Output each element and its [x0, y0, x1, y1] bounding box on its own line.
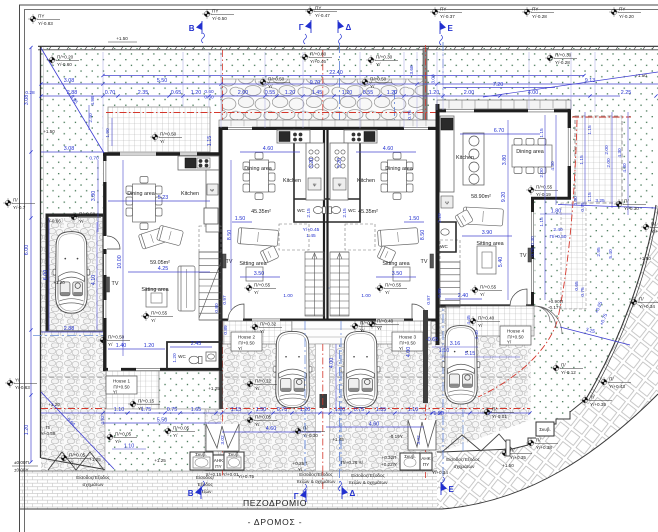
svg-text:1.50: 1.50 [235, 216, 246, 222]
svg-text:1.20: 1.20 [342, 90, 353, 96]
svg-text:1.20: 1.20 [387, 90, 398, 96]
svg-text:+1.50: +1.50 [639, 256, 651, 261]
svg-text:1.15: 1.15 [231, 407, 242, 413]
svg-text:Dining area: Dining area [244, 166, 272, 172]
svg-text:+1.50: +1.50 [43, 129, 55, 134]
svg-text:Υ/: Υ/ [478, 323, 483, 328]
svg-text:Π/+0.05: Π/+0.05 [69, 453, 86, 458]
svg-text:Υ/-0.19: Υ/-0.19 [536, 192, 551, 197]
svg-text:ΠΥ: ΠΥ [212, 9, 218, 14]
svg-text:Π/+0.26 Υ/: Π/+0.26 Υ/ [341, 460, 363, 465]
svg-text:±0.00Π: ±0.00Π [14, 460, 29, 465]
svg-text:0.80: 0.80 [214, 303, 220, 313]
svg-text:3.02: 3.02 [220, 435, 226, 445]
svg-text:Π/+0.50: Π/+0.50 [370, 77, 387, 82]
svg-text:45.35m²: 45.35m² [251, 209, 271, 215]
svg-text:Π/+0.50: Π/+0.50 [399, 341, 416, 346]
svg-text:9.70: 9.70 [310, 80, 321, 86]
svg-text:3.20: 3.20 [309, 158, 315, 169]
svg-text:0.70: 0.70 [105, 90, 116, 96]
svg-text:58.90m²: 58.90m² [471, 194, 491, 200]
svg-text:3.25: 3.25 [595, 198, 605, 204]
svg-text:Υ/-0.7: Υ/-0.7 [13, 205, 26, 210]
svg-text:5.15: 5.15 [465, 351, 476, 357]
svg-text:WC: WC [297, 208, 305, 213]
svg-text:0.89: 0.89 [223, 325, 229, 335]
svg-text:WC: WC [348, 208, 356, 213]
svg-text:Ε: Ε [448, 24, 454, 33]
svg-text:2.00: 2.00 [238, 90, 249, 96]
svg-text:0.55: 0.55 [265, 90, 276, 96]
svg-text:Π/: Π/ [46, 425, 51, 430]
svg-text:Υ/-0.60: Υ/-0.60 [57, 62, 72, 67]
svg-text:Sitting area: Sitting area [239, 261, 266, 267]
svg-text:3.80: 3.80 [91, 191, 97, 202]
svg-text:Υ/+0.35: Υ/+0.35 [510, 455, 526, 460]
svg-text:Π/+0.50: Π/+0.50 [108, 335, 125, 340]
svg-text:4.00: 4.00 [528, 90, 539, 96]
svg-text:2.35: 2.35 [138, 90, 149, 96]
svg-text:WC: WC [440, 244, 448, 249]
svg-text:1.10: 1.10 [124, 444, 135, 450]
svg-text:Π/+0.50: Π/+0.50 [238, 341, 255, 346]
svg-text:2.20: 2.20 [437, 213, 443, 223]
svg-text:1.00: 1.00 [283, 293, 293, 299]
svg-text:Υ/: Υ/ [115, 439, 120, 444]
svg-text:Π/: Π/ [639, 297, 644, 302]
svg-text:4.60: 4.60 [266, 426, 277, 432]
svg-text:2.88: 2.88 [64, 326, 75, 332]
svg-text:+1.50: +1.50 [502, 463, 514, 468]
svg-text:House 1: House 1 [113, 379, 131, 384]
svg-text:Δ: Δ [350, 489, 356, 498]
svg-text:2.40: 2.40 [458, 293, 469, 299]
svg-text:2.15: 2.15 [342, 208, 348, 218]
svg-text:1.20: 1.20 [335, 407, 346, 413]
svg-text:4.60: 4.60 [263, 146, 274, 152]
svg-text:Π/: Π/ [303, 426, 308, 431]
svg-text:Υ/: Υ/ [160, 139, 165, 144]
svg-text:Π/: Π/ [624, 199, 629, 204]
svg-text:+1.50: +1.50 [430, 411, 444, 417]
svg-text:Υ/: Υ/ [255, 422, 260, 427]
svg-text:πεζών & οχημάτων: πεζών & οχημάτων [297, 478, 336, 485]
svg-text:TV: TV [112, 281, 119, 287]
svg-text:1.15: 1.15 [579, 155, 585, 165]
svg-text:8.50: 8.50 [227, 230, 233, 241]
svg-text:Σκυβ.: Σκυβ. [404, 454, 416, 459]
svg-text:Υ/-0.30: Υ/-0.30 [624, 206, 639, 211]
svg-text:Dining area: Dining area [127, 191, 155, 197]
svg-text:Σκυβ.: Σκυβ. [539, 427, 551, 432]
svg-text:0.65: 0.65 [574, 281, 580, 291]
svg-text:Γ: Γ [299, 23, 304, 32]
svg-text:8.55: 8.55 [363, 90, 374, 96]
svg-text:4.30: 4.30 [617, 148, 623, 158]
svg-text:Υ/+0.35: Υ/+0.35 [590, 402, 606, 407]
svg-text:+1.25: +1.25 [154, 458, 166, 463]
svg-text:Υ/+0.45: Υ/+0.45 [303, 227, 320, 233]
svg-text:Π/+0.30: Π/+0.30 [555, 53, 572, 58]
svg-text:4.10: 4.10 [91, 275, 97, 286]
svg-text:Υ/+0.Τ5: Υ/+0.Τ5 [238, 474, 255, 479]
svg-text:Υ/: Υ/ [238, 346, 243, 351]
svg-text:5.40: 5.40 [608, 249, 614, 259]
svg-text:πεζών & οχημάτων: πεζών & οχημάτων [349, 479, 388, 486]
svg-text:3.02: 3.02 [416, 435, 422, 445]
svg-text:10.00: 10.00 [117, 255, 123, 269]
svg-text:0.97: 0.97 [222, 295, 228, 305]
svg-text:Β: Β [189, 24, 195, 33]
svg-text:0.75: 0.75 [167, 407, 178, 413]
svg-text:Π/+0.55: Π/+0.55 [480, 285, 497, 290]
svg-text:0.70: 0.70 [89, 156, 99, 162]
svg-text:- ΔΡΟΜΟΣ -: - ΔΡΟΜΟΣ - [248, 517, 303, 527]
svg-text:Υ/+0.34: Υ/+0.34 [432, 470, 448, 475]
svg-text:1.00: 1.00 [361, 293, 371, 299]
svg-text:3.08: 3.08 [64, 146, 75, 152]
svg-text:6.00: 6.00 [24, 245, 30, 256]
svg-text:1.80: 1.80 [551, 209, 562, 215]
svg-text:Ε: Ε [449, 485, 455, 494]
svg-text:Π/+0.30: Π/+0.30 [376, 55, 393, 60]
svg-text:Π/+0.05: Π/+0.05 [173, 426, 190, 431]
svg-text:Υ/: Υ/ [15, 378, 20, 383]
svg-text:Υ/-0.12: Υ/-0.12 [561, 370, 576, 375]
svg-text:Π/: Π/ [561, 363, 566, 368]
svg-text:Sitting area: Sitting area [141, 287, 168, 293]
svg-text:TV: TV [421, 259, 428, 265]
svg-text:1.45: 1.45 [306, 233, 316, 239]
svg-text:1.20: 1.20 [191, 90, 202, 96]
svg-text:Υ/: Υ/ [79, 219, 84, 224]
svg-text:Π/+0.50: Π/+0.50 [160, 132, 177, 137]
svg-text:Υ/-0.66: Υ/-0.66 [46, 219, 61, 224]
svg-text:ΠΥ: ΠΥ [532, 7, 538, 12]
svg-text:Υ/: Υ/ [69, 460, 74, 465]
svg-text:1.15: 1.15 [587, 192, 593, 202]
svg-text:+0.22\Υ: +0.22\Υ [381, 462, 397, 467]
svg-text:Π/: Π/ [492, 407, 497, 412]
svg-text:2.40: 2.40 [553, 227, 563, 233]
svg-text:Υ/: Υ/ [173, 433, 178, 438]
svg-text:0.75: 0.75 [354, 407, 365, 413]
svg-text:Γ: Γ [294, 492, 299, 501]
svg-text:3.20: 3.20 [337, 158, 343, 169]
svg-text:1.15: 1.15 [207, 136, 213, 147]
svg-text:0.75: 0.75 [277, 407, 288, 413]
svg-text:Π/: Π/ [651, 222, 656, 227]
svg-text:Π/: Π/ [536, 438, 541, 443]
svg-text:ΑΗΚ: ΑΗΚ [421, 456, 431, 461]
svg-text:1.50: 1.50 [409, 216, 420, 222]
svg-text:2.45: 2.45 [191, 341, 202, 347]
svg-text:Kitchen: Kitchen [456, 155, 474, 161]
svg-text:Υ/: Υ/ [108, 342, 113, 347]
svg-text:Π/+0.05: Π/+0.05 [360, 321, 377, 326]
svg-text:+0.32Π: +0.32Π [382, 455, 397, 460]
svg-text:Υ/+0.46: Υ/+0.46 [310, 59, 326, 64]
svg-text:3.08: 3.08 [431, 74, 437, 84]
svg-text:0.75: 0.75 [580, 202, 586, 212]
svg-text:2.25: 2.25 [621, 90, 632, 96]
svg-text:Υ/: Υ/ [590, 395, 595, 400]
svg-text:3.08: 3.08 [64, 78, 75, 84]
svg-text:1.20: 1.20 [24, 425, 30, 436]
svg-text:House 3: House 3 [399, 335, 417, 340]
svg-text:1.15: 1.15 [539, 128, 545, 138]
svg-text:Υ/-0.50: Υ/-0.50 [212, 16, 227, 21]
svg-text:Π/+0.12: Π/+0.12 [255, 379, 272, 384]
svg-text:1.15: 1.15 [587, 125, 593, 135]
svg-text:Π/+0.55: Π/+0.55 [151, 311, 168, 316]
svg-text:Π/: Π/ [609, 377, 614, 382]
svg-text:Π/+0.40: Π/+0.40 [478, 316, 495, 321]
svg-text:1.65: 1.65 [191, 407, 202, 413]
svg-text:Π/+0.40: Π/+0.40 [377, 319, 394, 324]
svg-text:TV: TV [520, 253, 527, 259]
svg-text:Υ/: Υ/ [113, 390, 118, 395]
svg-text:ΑΗΚ: ΑΗΚ [214, 458, 224, 463]
svg-text:Π/+0.50: Π/+0.50 [79, 212, 96, 217]
svg-text:Είσοδος/: Είσοδος/ [196, 475, 215, 480]
svg-text:Υ/: Υ/ [399, 346, 404, 351]
svg-text:0.75: 0.75 [530, 247, 536, 257]
svg-text:Π/+0.55: Π/+0.55 [254, 283, 271, 288]
svg-text:2.00: 2.00 [464, 90, 475, 96]
svg-text:TV: TV [226, 259, 233, 265]
svg-text:4.00: 4.00 [329, 358, 335, 369]
svg-text:Π/+0.15: Π/+0.15 [138, 399, 155, 404]
svg-text:+1.50: +1.50 [116, 36, 128, 41]
svg-text:Kitchen: Kitchen [181, 191, 199, 197]
svg-text:+0.90Π: +0.90Π [548, 299, 563, 304]
svg-text:Υ/-0.28: Υ/-0.28 [555, 60, 570, 65]
svg-text:Υ/-0.47: Υ/-0.47 [315, 13, 330, 18]
svg-text:Kitchen: Kitchen [283, 178, 301, 184]
svg-text:Υ/: Υ/ [260, 329, 265, 334]
svg-text:4.30: 4.30 [622, 163, 628, 173]
svg-text:Υ/: Υ/ [268, 84, 273, 89]
svg-text:4.25: 4.25 [158, 266, 169, 272]
svg-text:Dining area: Dining area [516, 149, 544, 155]
svg-text:4.30: 4.30 [550, 161, 556, 171]
svg-text:0.30: 0.30 [573, 196, 579, 206]
svg-text:Υ/-0.37: Υ/-0.37 [440, 14, 455, 19]
svg-text:6.00: 6.00 [43, 270, 49, 281]
svg-text:1.50: 1.50 [256, 407, 267, 413]
svg-text:Ψ: Ψ [338, 183, 342, 188]
svg-text:Υ/: Υ/ [507, 340, 512, 345]
svg-text:σχημάτων: σχημάτων [83, 481, 104, 487]
svg-text:0.75: 0.75 [580, 287, 586, 297]
svg-text:Υ/: Υ/ [254, 290, 259, 295]
svg-text:2.95: 2.95 [596, 247, 602, 257]
svg-text:Σκυβ.: Σκυβ. [195, 452, 207, 457]
svg-text:1.20: 1.20 [429, 90, 440, 96]
svg-text:1.10: 1.10 [439, 348, 450, 354]
svg-text:ΠΥ: ΠΥ [423, 462, 429, 467]
svg-text:22.40: 22.40 [329, 70, 343, 76]
svg-text:Π/: Π/ [510, 448, 515, 453]
svg-text:1.20: 1.20 [144, 343, 155, 349]
svg-text:Δ: Δ [346, 23, 352, 32]
svg-text:ΠΥ: ΠΥ [440, 7, 446, 12]
svg-text:3.90: 3.90 [482, 230, 493, 236]
svg-text:Σκυβ.: Σκυβ. [228, 452, 240, 457]
svg-text:Υ/+0.38: Υ/+0.38 [536, 445, 552, 450]
svg-text:House 2: House 2 [238, 335, 256, 340]
svg-text:+1.25: +1.25 [208, 386, 220, 391]
svg-text:Ψ: Ψ [445, 201, 449, 206]
svg-text:3.50: 3.50 [392, 271, 403, 277]
svg-text:Π/+0.50: Π/+0.50 [268, 77, 285, 82]
svg-text:Dining area: Dining area [385, 166, 413, 172]
svg-text:0.97: 0.97 [426, 295, 432, 305]
svg-text:Π/+0.05: Π/+0.05 [255, 415, 272, 420]
svg-text:1.90: 1.90 [105, 128, 111, 138]
svg-text:Υ/-0.58: Υ/-0.58 [41, 431, 56, 436]
svg-text:0.75: 0.75 [407, 110, 413, 120]
svg-text:Π/+0.05: Π/+0.05 [115, 432, 132, 437]
svg-text:Π/+0.55: Π/+0.55 [385, 283, 402, 288]
svg-text:3.50: 3.50 [254, 271, 265, 277]
svg-text:±0.00Υ: ±0.00Υ [14, 468, 29, 473]
svg-text:4.60: 4.60 [369, 422, 380, 428]
svg-text:-0.19Υ: -0.19Υ [389, 434, 403, 439]
svg-text:2.00: 2.00 [606, 158, 612, 168]
svg-text:Β: Β [188, 489, 194, 498]
svg-text:Π/+0.30: Π/+0.30 [310, 52, 327, 57]
svg-text:4.60: 4.60 [383, 146, 394, 152]
svg-text:ΠΥ: ΠΥ [619, 7, 625, 12]
svg-text:Υ/: Υ/ [385, 290, 390, 295]
svg-text:Π/+0.32: Π/+0.32 [260, 322, 277, 327]
svg-text:σχημάτων: σχημάτων [454, 463, 475, 469]
svg-text:Υ/+0.34: Υ/+0.34 [639, 304, 655, 309]
svg-text:1.20: 1.20 [285, 90, 296, 96]
svg-text:6.70: 6.70 [494, 128, 505, 134]
svg-text:4.98: 4.98 [90, 96, 96, 106]
svg-text:9.20: 9.20 [501, 192, 507, 203]
svg-text:3.80: 3.80 [502, 155, 508, 166]
svg-text:Υ/+0.15: Υ/+0.15 [651, 229, 658, 234]
svg-text:+1.25: +1.25 [89, 457, 101, 462]
svg-text:2.00: 2.00 [604, 145, 610, 155]
svg-text:4.40: 4.40 [474, 330, 480, 340]
svg-text:+1.45: +1.45 [332, 437, 344, 442]
svg-text:4.92: 4.92 [100, 415, 106, 425]
svg-text:1.10: 1.10 [408, 407, 419, 413]
svg-text:WC: WC [178, 354, 186, 359]
svg-text:Υ/: Υ/ [138, 406, 143, 411]
svg-text:Sitting area: Sitting area [476, 241, 503, 247]
svg-text:Υ/-0.01: Υ/-0.01 [492, 414, 507, 419]
svg-text:1.20: 1.20 [172, 353, 178, 363]
svg-text:5.50: 5.50 [157, 418, 168, 424]
svg-text:Ψ: Ψ [313, 183, 317, 188]
svg-text:-0.17Υ: -0.17Υ [548, 305, 562, 310]
svg-text:ΠΥ: ΠΥ [315, 6, 321, 11]
svg-text:Υ/: Υ/ [255, 386, 260, 391]
svg-text:3.68: 3.68 [409, 65, 415, 75]
svg-text:1.10: 1.10 [114, 407, 125, 413]
svg-text:ΠΥ: ΠΥ [38, 14, 44, 19]
svg-text:7.20: 7.20 [493, 82, 504, 88]
svg-text:0.65: 0.65 [171, 90, 182, 96]
svg-text:4.45: 4.45 [466, 315, 472, 325]
svg-text:Υ/-0.83: Υ/-0.83 [38, 21, 53, 26]
svg-text:1.55: 1.55 [376, 407, 387, 413]
svg-text:-0.65: -0.65 [426, 337, 438, 343]
svg-text:1.15: 1.15 [539, 217, 545, 227]
svg-text:ΠΥ: ΠΥ [215, 464, 221, 469]
svg-text:Υ/-0.63: Υ/-0.63 [15, 385, 30, 390]
svg-text:Υ/: Υ/ [360, 328, 365, 333]
svg-text:Ψ: Ψ [210, 188, 214, 193]
svg-text:5.23: 5.23 [158, 195, 169, 201]
svg-text:Υ/: Υ/ [376, 62, 381, 67]
svg-text:45.35m²: 45.35m² [358, 209, 378, 215]
svg-text:Kitchen: Kitchen [357, 178, 375, 184]
svg-text:Π/: Π/ [13, 198, 18, 203]
svg-text:+1.20: +1.20 [53, 280, 65, 285]
svg-text:Υ/: Υ/ [370, 84, 375, 89]
svg-text:Π/+0.50: Π/+0.50 [550, 234, 567, 240]
svg-text:Υ/-0.28: Υ/-0.28 [532, 14, 547, 19]
svg-text:2.15: 2.15 [306, 208, 312, 218]
svg-text:3.16: 3.16 [450, 341, 461, 347]
svg-text:1.45: 1.45 [312, 90, 323, 96]
svg-text:Π/+0.55: Π/+0.55 [536, 185, 553, 190]
svg-text:Υ/-0.20: Υ/-0.20 [619, 14, 634, 19]
svg-text:8.50: 8.50 [420, 230, 426, 241]
svg-text:5.50: 5.50 [157, 78, 168, 84]
svg-text:0.30: 0.30 [530, 236, 536, 246]
svg-text:1.40: 1.40 [116, 343, 127, 349]
svg-text:4.00: 4.00 [406, 347, 412, 358]
svg-text:5.40: 5.40 [498, 257, 504, 268]
svg-text:Sitting area: Sitting area [382, 261, 409, 267]
svg-text:2.00: 2.00 [539, 168, 545, 178]
svg-text:Υ/: Υ/ [151, 318, 156, 323]
svg-text:Υ/+0.43: Υ/+0.43 [609, 384, 625, 389]
svg-text:3.08: 3.08 [24, 95, 30, 106]
svg-text:Υ/: Υ/ [480, 292, 485, 297]
svg-text:0.89: 0.89 [437, 288, 443, 298]
svg-text:Π/+0.20: Π/+0.20 [57, 55, 74, 60]
svg-text:House 4: House 4 [507, 329, 525, 334]
